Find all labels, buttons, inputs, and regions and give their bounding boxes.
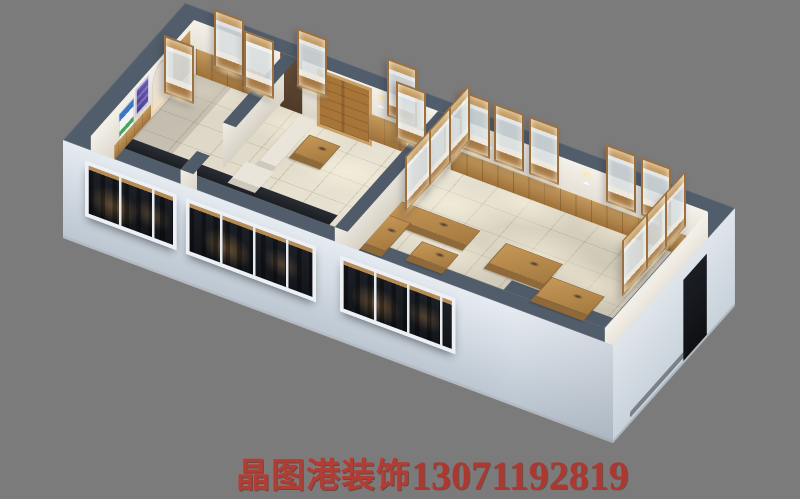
watermark: 晶图港装饰13071192819 (236, 452, 629, 499)
display-case (606, 144, 636, 213)
display-case (214, 9, 244, 78)
display-case (244, 30, 274, 99)
watermark-brand: 晶图港装饰 (236, 456, 411, 496)
display-case (297, 28, 327, 97)
display-case (529, 116, 559, 185)
watermark-phone: 13071192819 (411, 453, 629, 498)
display-case (494, 103, 524, 172)
display-case (164, 35, 194, 104)
wall-sconce-lamp (579, 168, 594, 187)
wall-base-shadow (630, 349, 686, 418)
entrance-opening (683, 254, 706, 361)
render-canvas: 晶图港装饰13071192819 (0, 0, 800, 499)
